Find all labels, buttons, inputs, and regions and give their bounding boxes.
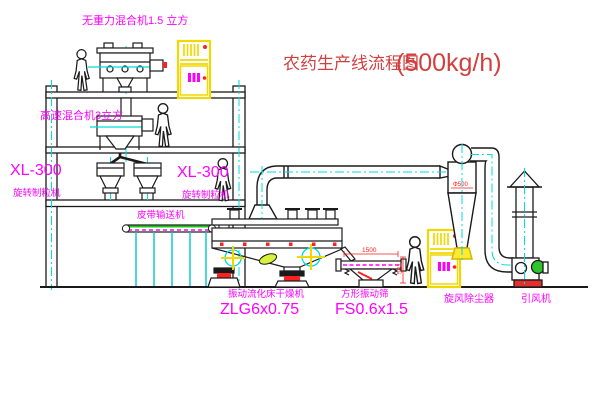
label-dryer-model: ZLG6x0.75 [220,301,299,318]
fan-duct-centerline [470,155,517,266]
person-figure-level2 [155,104,171,147]
person-figure-ground [407,237,424,284]
label-granulator-center-name: 旋转制粒机 [182,189,230,201]
label-induced-fan: 引风机 [521,292,551,305]
motor-accent [163,62,167,68]
label-high-speed-mixer: 高速混合机3立方 [40,108,123,122]
label-dryer-name: 振动流化床干燥机 [228,288,305,300]
vibrating-screen [336,259,406,287]
dryer-hood [212,219,338,225]
dryer-body [212,228,342,248]
control-cabinet-top [178,41,210,98]
label-belt-conveyor: 皮带输送机 [137,209,185,221]
mid-floor-slab [46,147,245,153]
label-granulator-center-model: XL-300 [177,164,229,181]
person-figure-roof [74,50,89,91]
conveyor-legs [136,232,206,286]
dim-cyclone: Φ500 [453,182,468,188]
label-cyclone: 旋风除尘器 [444,292,494,305]
label-top-mixer: 无重力混合机1.5 立方 [82,13,188,27]
induced-draft-fan [507,171,548,287]
exhaust-duct-centerlines [250,166,462,222]
label-screen-model: FS0.6x1.5 [335,301,408,318]
dryer-support-right [275,271,309,287]
gravity-free-mixer [88,43,167,92]
fan-base [514,280,542,287]
fluid-bed-dryer [208,209,355,287]
label-screen-name: 方形振动筛 [341,288,389,300]
y-chute [110,153,147,164]
roof-slab [46,92,245,98]
label-granulator-left-name: 旋转制粒机 [13,187,61,199]
diagram-title-capacity: (500kg/h) [396,49,502,77]
exhaust-duct [249,166,450,219]
label-granulator-left-model: XL-300 [10,162,62,179]
high-speed-mixer [90,98,153,150]
dim-screen-height: 541 [397,263,404,274]
dim-screen-length: 1500 [362,247,377,254]
process-flow-diagram: 1500 541 Φ500 无重力混合机1.5 立方 农药生产线流程图 (500… [0,0,600,403]
process-flow-drawing-canvas: 1500 541 Φ500 无重力混合机1.5 立方 农药生产线流程图 (500… [0,0,600,403]
